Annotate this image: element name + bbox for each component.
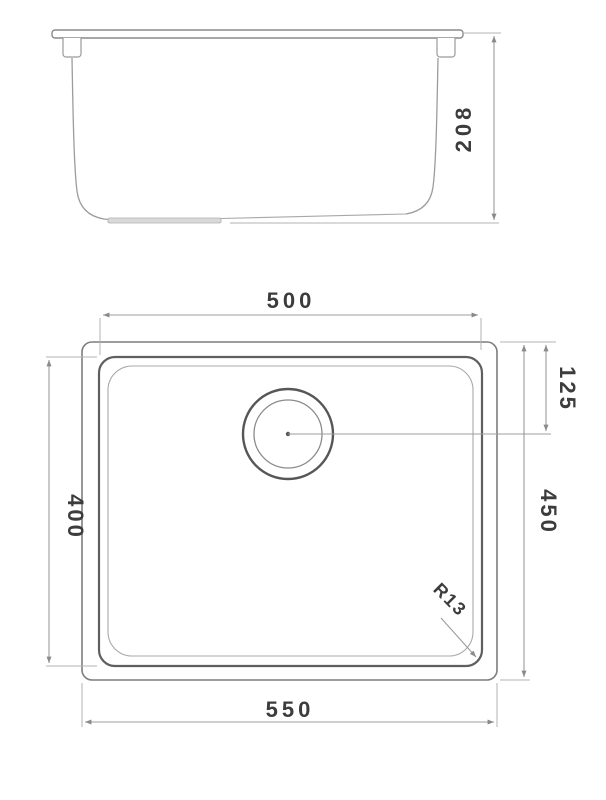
dimension-550: 550 bbox=[82, 683, 497, 727]
side-left-clip bbox=[63, 38, 81, 57]
dim-500-label: 500 bbox=[267, 288, 316, 313]
plan-view: 500 400 550 450 bbox=[46, 288, 580, 727]
dimension-125: 125 bbox=[546, 345, 580, 431]
dim-125-label: 125 bbox=[555, 366, 580, 412]
dim-208-label: 208 bbox=[451, 104, 476, 153]
plan-outer-rim bbox=[82, 342, 497, 680]
side-right-wall bbox=[406, 58, 438, 214]
dim-550-label: 550 bbox=[266, 697, 315, 722]
drawing-svg: 208 500 bbox=[0, 0, 606, 800]
dim-450-label: 450 bbox=[536, 489, 561, 535]
dimension-450: 450 bbox=[500, 342, 561, 680]
sink-technical-drawing: 208 500 bbox=[0, 0, 606, 800]
side-elevation-view: 208 bbox=[52, 30, 501, 223]
dim-400-label: 400 bbox=[63, 494, 88, 540]
side-bowl-bottom bbox=[220, 214, 406, 219]
side-right-clip bbox=[437, 38, 455, 57]
side-drain-recess bbox=[108, 218, 221, 223]
dimension-208: 208 bbox=[230, 33, 501, 223]
side-rim-flange bbox=[52, 30, 463, 38]
side-left-wall bbox=[72, 58, 112, 220]
